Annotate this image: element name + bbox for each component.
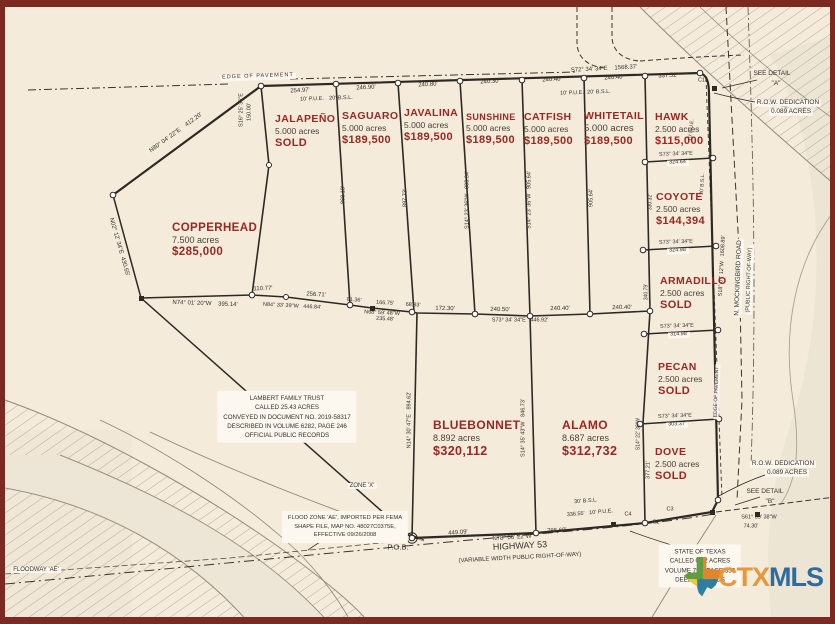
- map-annotation: N80° 04' 22"E 412.20': [149, 112, 204, 154]
- map-annotation: 246.90': [356, 84, 376, 91]
- map-annotation: 240.30': [480, 78, 500, 85]
- map-annotation: 340.79': [645, 284, 650, 300]
- map-annotation: 10' P.U.E.: [300, 97, 324, 103]
- lot-acres: 8.892 acres: [433, 433, 520, 443]
- map-annotation: R.O.W. DEDICATION: [755, 100, 821, 107]
- lot-whitetail: WHITETAIL5.000 acres$189,500: [584, 110, 644, 147]
- mls-text: MLS: [769, 562, 823, 592]
- map-annotation: 254.97': [290, 87, 310, 94]
- lot-name: JALAPEÑO: [275, 113, 335, 125]
- map-annotation: (PUBLIC RIGHT-OF-WAY): [746, 245, 754, 314]
- ctxmls-logo-text: CTXMLS: [718, 564, 823, 591]
- lot-price: $320,112: [433, 444, 520, 458]
- lot-copperhead: COPPERHEAD7.500 acres$285,000: [172, 222, 257, 258]
- lot-catfish: CATFISH5.000 acres$189,500: [524, 111, 573, 147]
- map-annotation: FLOODWAY 'AE': [11, 567, 61, 573]
- lot-price: $189,500: [404, 131, 458, 143]
- map-annotation: 240.80': [418, 81, 438, 88]
- lot-price: $189,500: [342, 134, 398, 146]
- map-annotation: 68.93': [405, 303, 420, 309]
- lot-name: JAVALINA: [404, 107, 458, 119]
- map-annotation: 10' P.U.E.: [560, 91, 584, 97]
- lot-name: CATFISH: [524, 111, 573, 123]
- lot-name: ARMADILLO: [660, 275, 727, 287]
- map-annotation: 240.40': [550, 306, 570, 312]
- ctxmls-logo: CTXMLS: [682, 556, 823, 598]
- lot-name: BLUEBONNET: [433, 418, 520, 432]
- map-annotation: C14: [698, 78, 708, 84]
- lot-price: $312,732: [562, 444, 617, 458]
- lot-hawk: HAWK2.500 acres$115,000: [655, 111, 703, 147]
- map-note-box: LAMBERT FAMILY TRUST CALLED 25.43 ACRES …: [217, 391, 356, 443]
- map-annotation: S73° 34' 34"E: [659, 240, 693, 247]
- map-annotation: S61° 39' 38"W: [741, 515, 776, 521]
- map-annotation: EDGE OF PAVEMENT: [220, 73, 296, 81]
- lot-price: $115,000: [655, 135, 703, 147]
- lot-name: SAGUARO: [342, 110, 398, 122]
- lot-name: WHITETAIL: [584, 110, 644, 122]
- map-annotation: N84° 33' 39"W 446.84': [263, 303, 321, 312]
- map-annotation: N14° 30' 47"E 894.62': [407, 392, 413, 449]
- map-annotation: 240.40': [542, 76, 562, 83]
- map-annotation: C3: [666, 507, 673, 513]
- map-annotation: 449.09': [448, 529, 468, 536]
- map-annotation: EDGE OF PAVEMENT: [714, 365, 721, 420]
- map-annotation: 0.089 ACRES: [769, 109, 813, 116]
- map-annotation: "A": [772, 81, 781, 88]
- map-annotation: SEE DETAIL: [753, 71, 790, 78]
- map-annotation: 905.64': [589, 189, 595, 207]
- map-annotation: 74.30': [744, 524, 759, 530]
- map-annotation: 330.32': [649, 194, 654, 210]
- lot-price: $189,500: [524, 135, 573, 147]
- lot-name: SUNSHINE: [466, 112, 516, 122]
- map-annotation: C4: [624, 512, 631, 518]
- plat-labels: JALAPEÑO5.000 acresSOLDSAGUARO5.000 acre…: [0, 0, 835, 624]
- map-annotation: HIGHWAY 53: [493, 540, 548, 552]
- ctx-text: CTX: [718, 562, 769, 592]
- lot-acres: 2.500 acres: [655, 124, 703, 134]
- map-annotation: N74° 01' 20"W 395.14': [172, 300, 237, 308]
- lot-acres: 2.500 acres: [656, 204, 705, 214]
- lot-name: DOVE: [655, 446, 699, 458]
- map-annotation: ZONE 'X': [348, 483, 377, 489]
- lot-acres: 5.000 acres: [584, 123, 644, 134]
- map-annotation: 240.40': [604, 74, 624, 81]
- lot-acres: 8.687 acres: [562, 433, 617, 443]
- plat-map-frame: JALAPEÑO5.000 acresSOLDSAGUARO5.000 acre…: [0, 0, 835, 624]
- map-annotation: 240.40': [612, 305, 632, 311]
- map-annotation: 166.75': [376, 301, 394, 307]
- frame-border-left: [0, 0, 5, 624]
- map-annotation: 110.77': [253, 286, 272, 293]
- map-annotation: 336.55' 10' P.U.E.: [567, 509, 614, 519]
- lot-bluebonnet: BLUEBONNET8.892 acres$320,112: [433, 418, 520, 458]
- lot-armadillo: ARMADILLO2.500 acresSOLD: [660, 275, 727, 311]
- map-annotation: S73° 34' 34"E: [660, 324, 694, 331]
- map-annotation: S73° 34' 34"E 446.92': [492, 318, 548, 324]
- lot-saguaro: SAGUARO5.000 acres$189,500: [342, 110, 398, 146]
- lot-name: HAWK: [655, 111, 703, 123]
- map-annotation: 303.37': [666, 422, 688, 428]
- lot-acres: 5.000 acres: [524, 124, 573, 134]
- lot-javalina: JAVALINA5.000 acres$189,500: [404, 107, 458, 143]
- lot-name: ALAMO: [562, 418, 617, 432]
- lot-acres: 5.000 acres: [466, 123, 516, 133]
- map-annotation: S14° 23' 36"W 903.64': [465, 171, 471, 229]
- lot-pecan: PECAN2.500 acresSOLD: [658, 361, 702, 397]
- map-annotation: S14° 35' 43"W 846.73': [521, 399, 527, 457]
- lot-name: COYOTE: [656, 191, 705, 203]
- lot-acres: 2.500 acres: [658, 374, 702, 384]
- map-note-box: FLOOD ZONE 'AE', IMPORTED PER FEMA SHAPE…: [282, 511, 408, 543]
- map-annotation: 324.64': [667, 160, 689, 166]
- map-annotation: S73° 34' 34"E: [659, 152, 693, 159]
- lot-acres: 5.000 acres: [342, 123, 398, 133]
- map-annotation: S14° 23' 36"W 905.64': [527, 171, 533, 229]
- map-annotation: 868.18': [341, 186, 347, 204]
- map-annotation: SEE DETAIL: [746, 489, 783, 496]
- frame-border-bottom: [0, 617, 835, 624]
- map-annotation: 20' B.S.L.: [329, 96, 353, 102]
- map-annotation: S73° 34' 34"E: [658, 414, 692, 421]
- map-annotation: 20' B.S.L.: [700, 173, 706, 195]
- lot-dove: DOVE2.500 acresSOLD: [655, 446, 699, 482]
- lot-price: $285,000: [172, 246, 257, 258]
- map-annotation: 897.73': [403, 189, 409, 207]
- map-annotation: 172.30': [435, 306, 455, 312]
- map-annotation: 30' B.S.L.: [574, 498, 598, 506]
- lot-status-sold: SOLD: [275, 137, 335, 149]
- map-annotation: 235.48': [376, 317, 394, 323]
- map-annotation: 785.60': [547, 527, 567, 534]
- lot-acres: 2.500 acres: [660, 288, 727, 298]
- map-annotation: 377.21': [646, 461, 652, 479]
- lot-alamo: ALAMO8.687 acres$312,732: [562, 418, 617, 458]
- map-annotation: 314.98': [668, 332, 690, 338]
- map-annotation: 324.98': [667, 248, 689, 254]
- map-annotation: N02° 12' 34"E 430.65': [108, 217, 130, 277]
- map-annotation: C2: [652, 520, 659, 526]
- map-annotation: N. MOCKINGBIRD ROAD: [734, 238, 743, 318]
- map-annotation: (VARIABLE WIDTH PUBLIC RIGHT-OF-WAY): [458, 552, 581, 564]
- map-annotation: S16° 25' 36"E: [239, 93, 245, 127]
- lot-acres: 7.500 acres: [172, 235, 257, 245]
- lot-acres: 2.500 acres: [655, 459, 699, 469]
- map-annotation: 0.089 ACRES: [765, 470, 809, 477]
- map-annotation: R.O.W. DEDICATION: [750, 461, 816, 468]
- map-annotation: 337.52': [658, 72, 678, 79]
- map-annotation: "B": [766, 499, 775, 506]
- frame-border-top: [0, 0, 835, 7]
- map-annotation: 150.00': [247, 103, 253, 121]
- lot-acres: 5.000 acres: [404, 120, 458, 130]
- lot-jalapeo: JALAPEÑO5.000 acresSOLD: [275, 113, 335, 149]
- lot-name: COPPERHEAD: [172, 222, 257, 234]
- map-annotation: 81.36': [346, 298, 361, 305]
- lot-status-sold: SOLD: [660, 299, 727, 311]
- lot-coyote: COYOTE2.500 acres$144,394: [656, 191, 705, 227]
- lot-price: $144,394: [656, 215, 705, 227]
- lot-name: PECAN: [658, 361, 702, 373]
- map-annotation: 20' B.S.L.: [587, 90, 611, 96]
- map-annotation: 240.50': [490, 307, 510, 313]
- lot-status-sold: SOLD: [658, 385, 702, 397]
- lot-acres: 5.000 acres: [275, 126, 335, 136]
- lot-sunshine: SUNSHINE5.000 acres$189,500: [466, 112, 516, 146]
- map-annotation: S72° 34' 34"E 1568.37': [571, 64, 638, 73]
- map-annotation: P.O.B.: [387, 543, 408, 551]
- lot-price: $189,500: [584, 135, 644, 147]
- map-annotation: 256.71': [306, 291, 326, 298]
- map-annotation: S14° 22' 36"W: [637, 418, 642, 450]
- lot-price: $189,500: [466, 134, 516, 146]
- lot-status-sold: SOLD: [655, 470, 699, 482]
- frame-border-right: [830, 0, 835, 624]
